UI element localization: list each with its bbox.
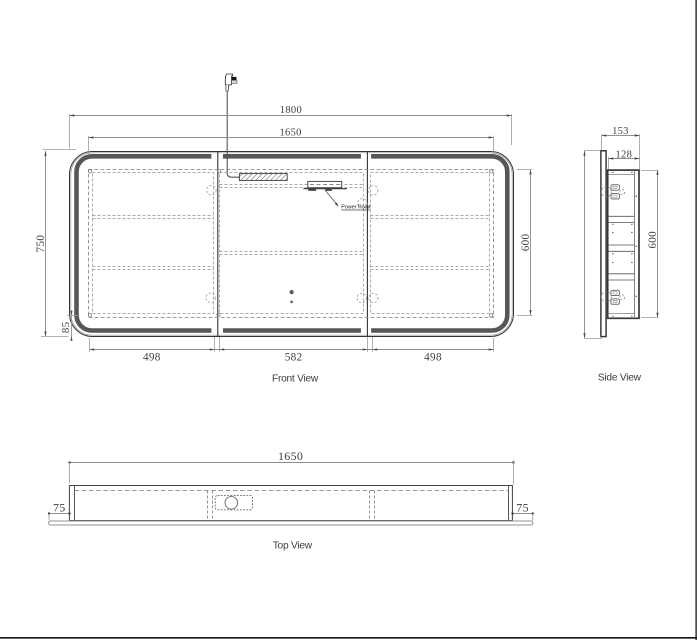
svg-text:498: 498 — [424, 352, 442, 364]
svg-text:1650: 1650 — [278, 449, 303, 463]
svg-text:75: 75 — [516, 500, 529, 514]
svg-text:75: 75 — [53, 500, 66, 514]
svg-text:600: 600 — [520, 233, 532, 251]
svg-text:Side View: Side View — [598, 373, 642, 384]
svg-text:582: 582 — [285, 352, 303, 364]
svg-text:153: 153 — [612, 126, 629, 137]
svg-text:1800: 1800 — [280, 105, 302, 116]
svg-text:Top View: Top View — [273, 540, 313, 551]
svg-text:85: 85 — [60, 322, 72, 333]
svg-text:128: 128 — [615, 149, 632, 160]
svg-text:1650: 1650 — [279, 127, 301, 138]
svg-text:750: 750 — [35, 235, 47, 253]
svg-text:Front View: Front View — [272, 374, 319, 385]
svg-text:600: 600 — [647, 231, 659, 249]
svg-text:498: 498 — [143, 352, 161, 364]
